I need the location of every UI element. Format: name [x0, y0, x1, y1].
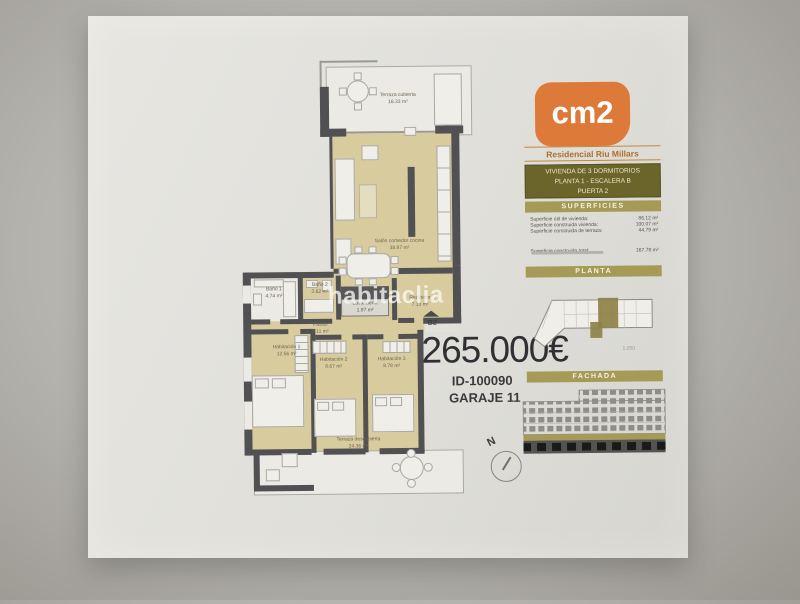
dining-table — [347, 253, 391, 278]
photo-of-floorplan-sheet: Terraza cubierta16.33 m² Salón comedor c… — [0, 0, 800, 600]
armchair — [361, 145, 378, 160]
window — [243, 286, 251, 304]
wall-segment — [245, 272, 334, 279]
room-area: 38.87 m² — [357, 244, 441, 251]
fine-print-line — [532, 251, 604, 255]
wall-segment — [398, 334, 418, 339]
room-area: 16.33 m² — [356, 98, 440, 105]
wall-segment — [453, 265, 462, 322]
planta-header: PLANTA — [526, 265, 662, 277]
balcony-edge-line — [319, 61, 321, 87]
room-area: 4.74 m² — [251, 293, 297, 300]
planter — [266, 469, 280, 481]
sheet-content: Terraza cubierta16.33 m² Salón comedor c… — [0, 0, 800, 604]
chair — [339, 268, 347, 276]
compass-north-label: N — [485, 435, 497, 449]
superficies-header: SUPERFICIES — [525, 200, 661, 212]
room-area: 8.67 m² — [309, 363, 359, 370]
room-label-pasillo: Pasillo5.11 m² — [298, 322, 342, 335]
building-plan-thumbnail — [530, 287, 659, 352]
room-area: 8.78 m² — [367, 362, 417, 369]
wall-segment — [254, 485, 314, 492]
chair — [339, 257, 347, 265]
terrace-chair — [407, 449, 416, 458]
superficie-row: Superficie construida de terraza:44.79 m… — [530, 227, 658, 234]
pillow — [375, 397, 387, 406]
rug — [359, 184, 377, 218]
superficie-value: 44.79 m² — [639, 227, 659, 233]
terrace-chair — [407, 479, 416, 488]
chair — [391, 256, 399, 264]
room-area: 12.56 m² — [261, 350, 313, 357]
entrance-label: B2 — [423, 320, 441, 327]
room-area: 24.36 m² — [315, 442, 401, 449]
room-label-bano1: Baño 14.74 m² — [251, 286, 297, 299]
unit-info-line: VIVIENDA DE 3 DORMITORIOS — [526, 166, 660, 177]
info-panel: cm2 Residencial Riu Millars VIVIENDA DE … — [0, 0, 797, 4]
window — [244, 402, 252, 430]
fachada-header: FACHADA — [527, 370, 663, 382]
compass-circle-icon — [491, 451, 522, 482]
pillow — [332, 402, 344, 411]
wall-segment — [246, 319, 270, 324]
wall-segment — [398, 318, 414, 323]
sofa — [335, 158, 356, 220]
unit-info-line: PUERTA 2 — [526, 186, 660, 197]
wall-segment — [315, 335, 341, 340]
garage-label: GARAJE 11 — [449, 390, 521, 406]
pillow — [272, 378, 286, 388]
chair — [391, 267, 399, 275]
kitchen-island-wall — [408, 167, 416, 237]
terrace-chair — [392, 463, 401, 472]
room-label-habitacion3: Habitación 38.78 m² — [367, 356, 417, 370]
room-label-terraza-descubierta: Terraza descubierta24.36 m² — [315, 436, 401, 450]
room-label-habitacion1: Habitación 112.56 m² — [260, 344, 312, 358]
wall-segment — [320, 129, 346, 137]
wall-segment — [246, 329, 288, 334]
superficies-table: Superficie útil de vivienda:86.12 m² Sup… — [530, 215, 658, 254]
terrace-table — [400, 456, 424, 480]
superficie-value: 167.78 m² — [636, 247, 659, 253]
wall-segment — [367, 334, 383, 339]
unit-info-box: VIVIENDA DE 3 DORMITORIOS PLANTA 1 - ESC… — [525, 163, 661, 198]
brand-name: Residencial Riu Millars — [524, 145, 660, 161]
wall-segment — [451, 130, 460, 265]
watermark: habitaclia — [328, 282, 444, 311]
facade-elevation-drawing — [519, 387, 672, 457]
floor-plan: Terraza cubierta16.33 m² Salón comedor c… — [0, 0, 797, 4]
terrace-chair — [339, 88, 347, 96]
terrace-chair — [354, 72, 362, 80]
room-label-salon: Salón comedor cocina38.87 m² — [357, 238, 441, 252]
pillow — [255, 378, 269, 388]
superficie-label: Superficie construida de terraza: — [530, 228, 602, 235]
pillow — [317, 402, 329, 411]
wardrobe — [312, 341, 346, 354]
property-id: ID-100090 — [452, 373, 513, 389]
wardrobe — [382, 341, 410, 353]
plan-scale-note: 1:250 — [622, 346, 635, 352]
pillow — [390, 397, 402, 406]
window — [244, 358, 252, 382]
entrance-arrow-icon — [423, 311, 439, 317]
balcony-edge-line — [319, 60, 377, 63]
cm2-logo: cm2 — [535, 82, 631, 147]
terrace-door-marker — [404, 127, 416, 136]
room-label-terraza-cubierta: Terraza cubierta16.33 m² — [356, 92, 440, 106]
terrace-chair — [424, 463, 433, 472]
room-label-habitacion2: Habitación 28.67 m² — [309, 356, 359, 370]
room-area: 5.11 m² — [298, 328, 342, 335]
planter — [282, 453, 298, 467]
